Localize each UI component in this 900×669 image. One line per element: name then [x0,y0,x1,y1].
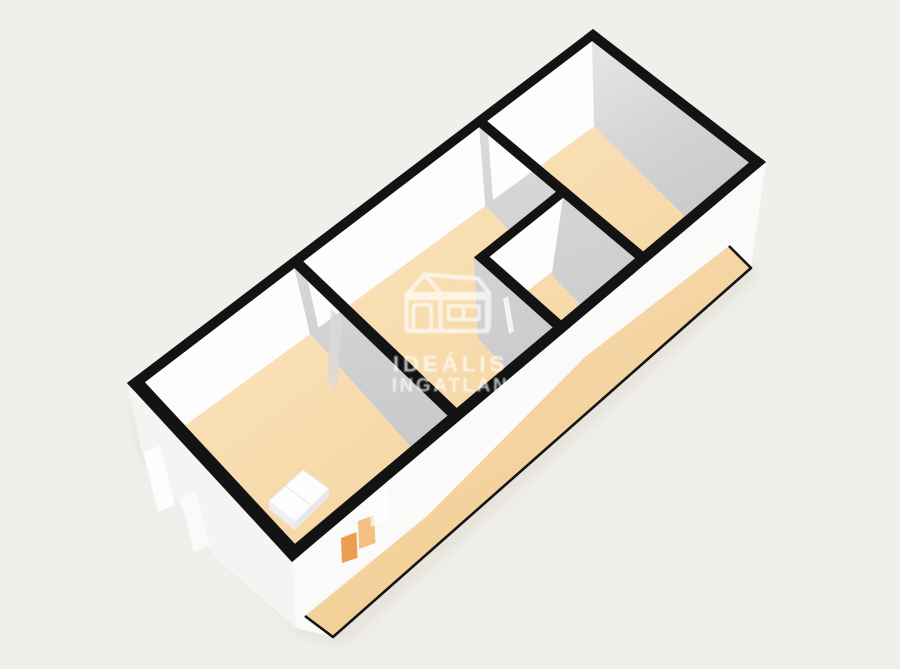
svg-text:IDEÁLIS: IDEÁLIS [393,352,508,377]
svg-text:INGATLAN: INGATLAN [392,376,510,397]
